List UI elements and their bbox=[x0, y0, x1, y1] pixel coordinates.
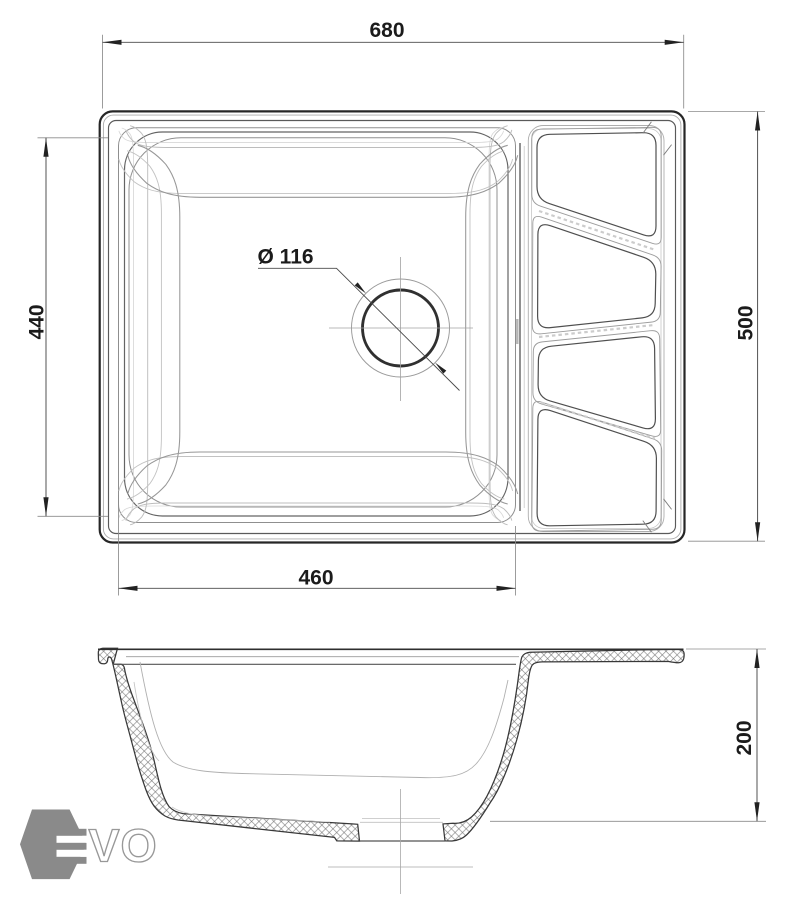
svg-text:680: 680 bbox=[369, 19, 404, 42]
svg-text:500: 500 bbox=[735, 305, 758, 340]
svg-text:Ø 116: Ø 116 bbox=[258, 246, 314, 269]
svg-text:440: 440 bbox=[26, 304, 49, 339]
svg-text:460: 460 bbox=[298, 567, 333, 590]
svg-text:200: 200 bbox=[733, 720, 756, 755]
svg-text:VO: VO bbox=[89, 820, 158, 872]
